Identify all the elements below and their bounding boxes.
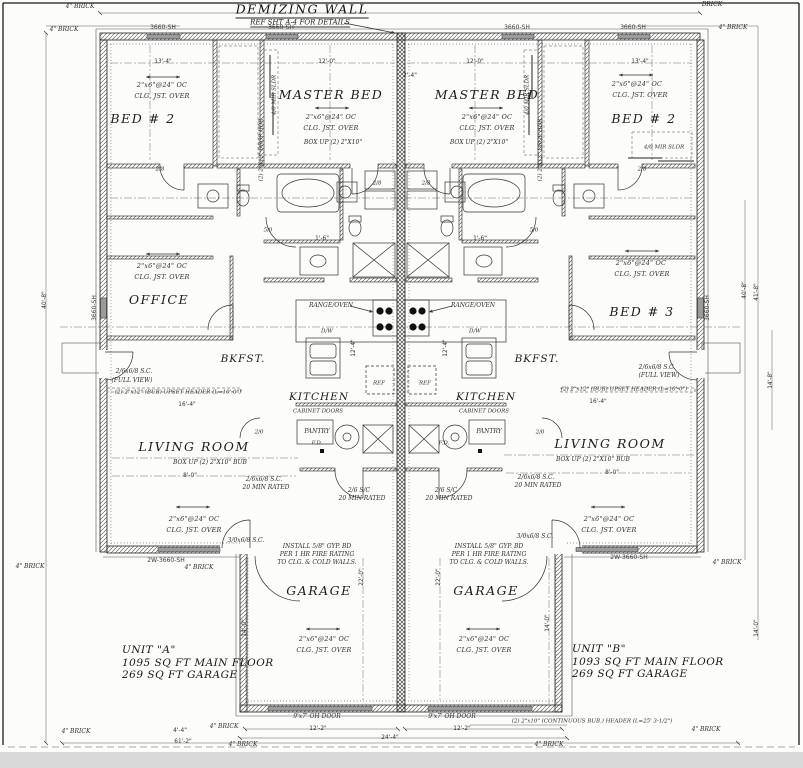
unit-b-name: UNIT "B" — [572, 643, 724, 656]
unit-a-summary: UNIT "A" 1095 SQ FT MAIN FLOOR 269 SQ FT… — [122, 644, 274, 682]
scan-edge — [0, 752, 803, 768]
unit-a-name: UNIT "A" — [122, 644, 274, 657]
floor-plan-page: 3660-SH3660-SH3660-SH3660-SH3660-SH3660-… — [0, 0, 803, 768]
unit-b-summary: UNIT "B" 1093 SQ FT MAIN FLOOR 269 SQ FT… — [572, 643, 724, 681]
demising-wall-label: DEMIZING WALL — [236, 2, 369, 19]
unit-a-main-floor-area: 1095 SQ FT MAIN FLOOR — [122, 657, 274, 670]
demising-wall-ref-note: REF SHT A-4 FOR DETAILS — [250, 19, 350, 28]
unit-a-garage-area: 269 SQ FT GARAGE — [122, 669, 274, 682]
unit-b-main-floor-area: 1093 SQ FT MAIN FLOOR — [572, 656, 724, 669]
exterior-walls — [100, 33, 704, 712]
unit-b-garage-area: 269 SQ FT GARAGE — [572, 668, 724, 681]
